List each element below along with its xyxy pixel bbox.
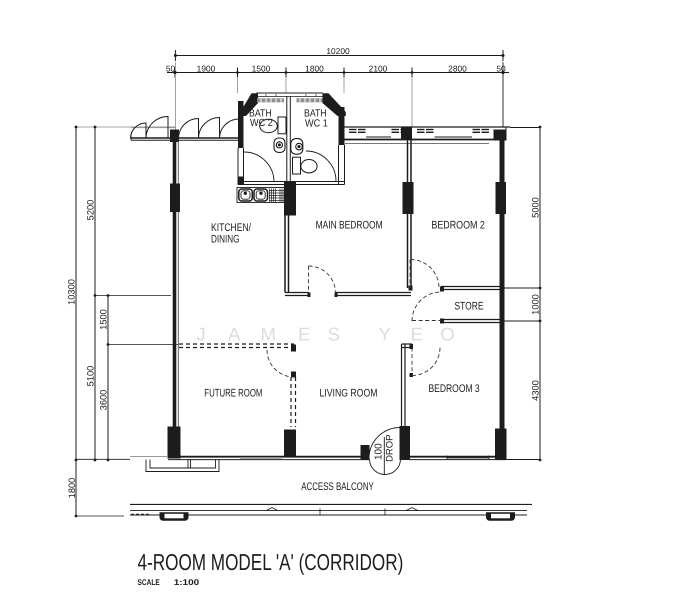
svg-text:WC 1: WC 1 [305, 119, 328, 130]
svg-text:J: J [197, 323, 206, 344]
svg-text:1:100: 1:100 [174, 577, 200, 587]
svg-text:5000: 5000 [531, 197, 541, 218]
svg-text:10200: 10200 [326, 46, 350, 56]
svg-text:4300: 4300 [531, 380, 541, 401]
svg-text:10300: 10300 [67, 279, 77, 305]
svg-text:BEDROOM 2: BEDROOM 2 [431, 219, 484, 231]
svg-text:1800: 1800 [305, 63, 324, 73]
svg-text:WC 2: WC 2 [250, 118, 273, 129]
svg-text:SCALE: SCALE [138, 577, 161, 587]
svg-text:ACCESS BALCONY: ACCESS BALCONY [301, 481, 374, 493]
svg-text:4-ROOM MODEL 'A' (CORRIDOR): 4-ROOM MODEL 'A' (CORRIDOR) [138, 549, 404, 575]
svg-text:A: A [228, 323, 241, 344]
svg-text:1800: 1800 [67, 478, 77, 499]
svg-text:50: 50 [496, 63, 506, 73]
svg-text:O: O [440, 323, 454, 344]
svg-text:2100: 2100 [369, 63, 388, 73]
svg-text:DINING: DINING [211, 233, 239, 245]
svg-text:STORE: STORE [455, 301, 484, 313]
svg-text:E: E [298, 323, 310, 344]
svg-text:1500: 1500 [252, 63, 271, 73]
svg-text:KITCHEN/: KITCHEN/ [211, 222, 252, 234]
svg-text:S: S [328, 323, 340, 344]
svg-text:LIVING ROOM: LIVING ROOM [320, 387, 378, 399]
svg-text:100: 100 [374, 443, 385, 460]
svg-text:DROP: DROP [385, 434, 396, 461]
svg-text:BEDROOM 3: BEDROOM 3 [429, 383, 480, 395]
svg-text:3600: 3600 [99, 390, 109, 411]
svg-text:1000: 1000 [531, 294, 541, 315]
svg-text:5100: 5100 [86, 366, 96, 387]
svg-text:MAIN BEDROOM: MAIN BEDROOM [316, 219, 383, 231]
svg-text:M: M [261, 323, 276, 344]
svg-text:5200: 5200 [86, 200, 96, 221]
svg-text:1900: 1900 [197, 63, 216, 73]
svg-text:Y: Y [379, 323, 391, 344]
svg-text:FUTURE ROOM: FUTURE ROOM [204, 388, 262, 400]
svg-text:50: 50 [166, 63, 176, 73]
svg-text:E: E [411, 323, 423, 344]
svg-text:2800: 2800 [448, 63, 467, 73]
svg-text:1500: 1500 [99, 309, 109, 330]
